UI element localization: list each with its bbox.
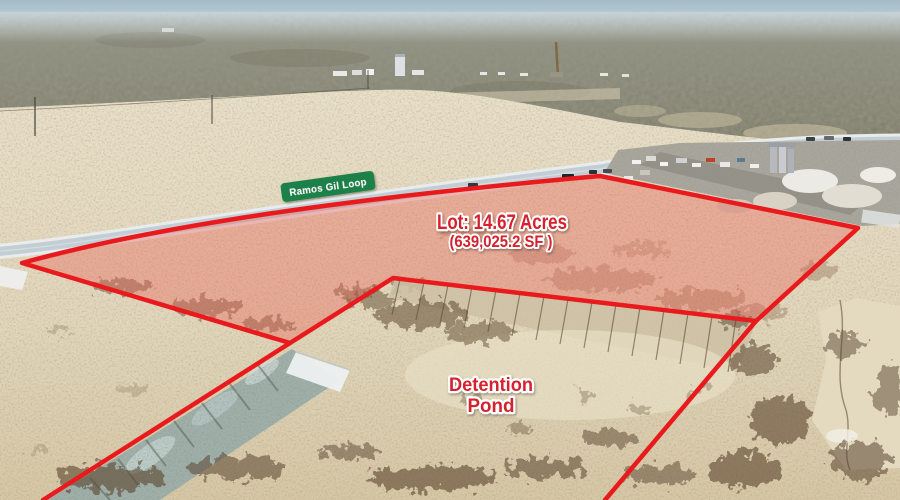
aerial-photo-canvas: Ramos Gil Loop Lot: 14.67 Acres (639,025… xyxy=(0,0,900,500)
lot-size-label-line2: (639,025.2 SF ) xyxy=(450,232,553,251)
lot-size-label-line1: Lot: 14.67 Acres xyxy=(437,211,567,234)
detention-pond-label-line2: Pond xyxy=(468,396,515,417)
aerial-photo: Ramos Gil Loop Lot: 14.67 Acres (639,025… xyxy=(0,0,900,500)
detention-pond-label-line1: Detention xyxy=(449,375,533,396)
horizon-haze xyxy=(0,12,900,42)
lot-size-label: Lot: 14.67 Acres (639,025.2 SF ) xyxy=(437,211,567,251)
